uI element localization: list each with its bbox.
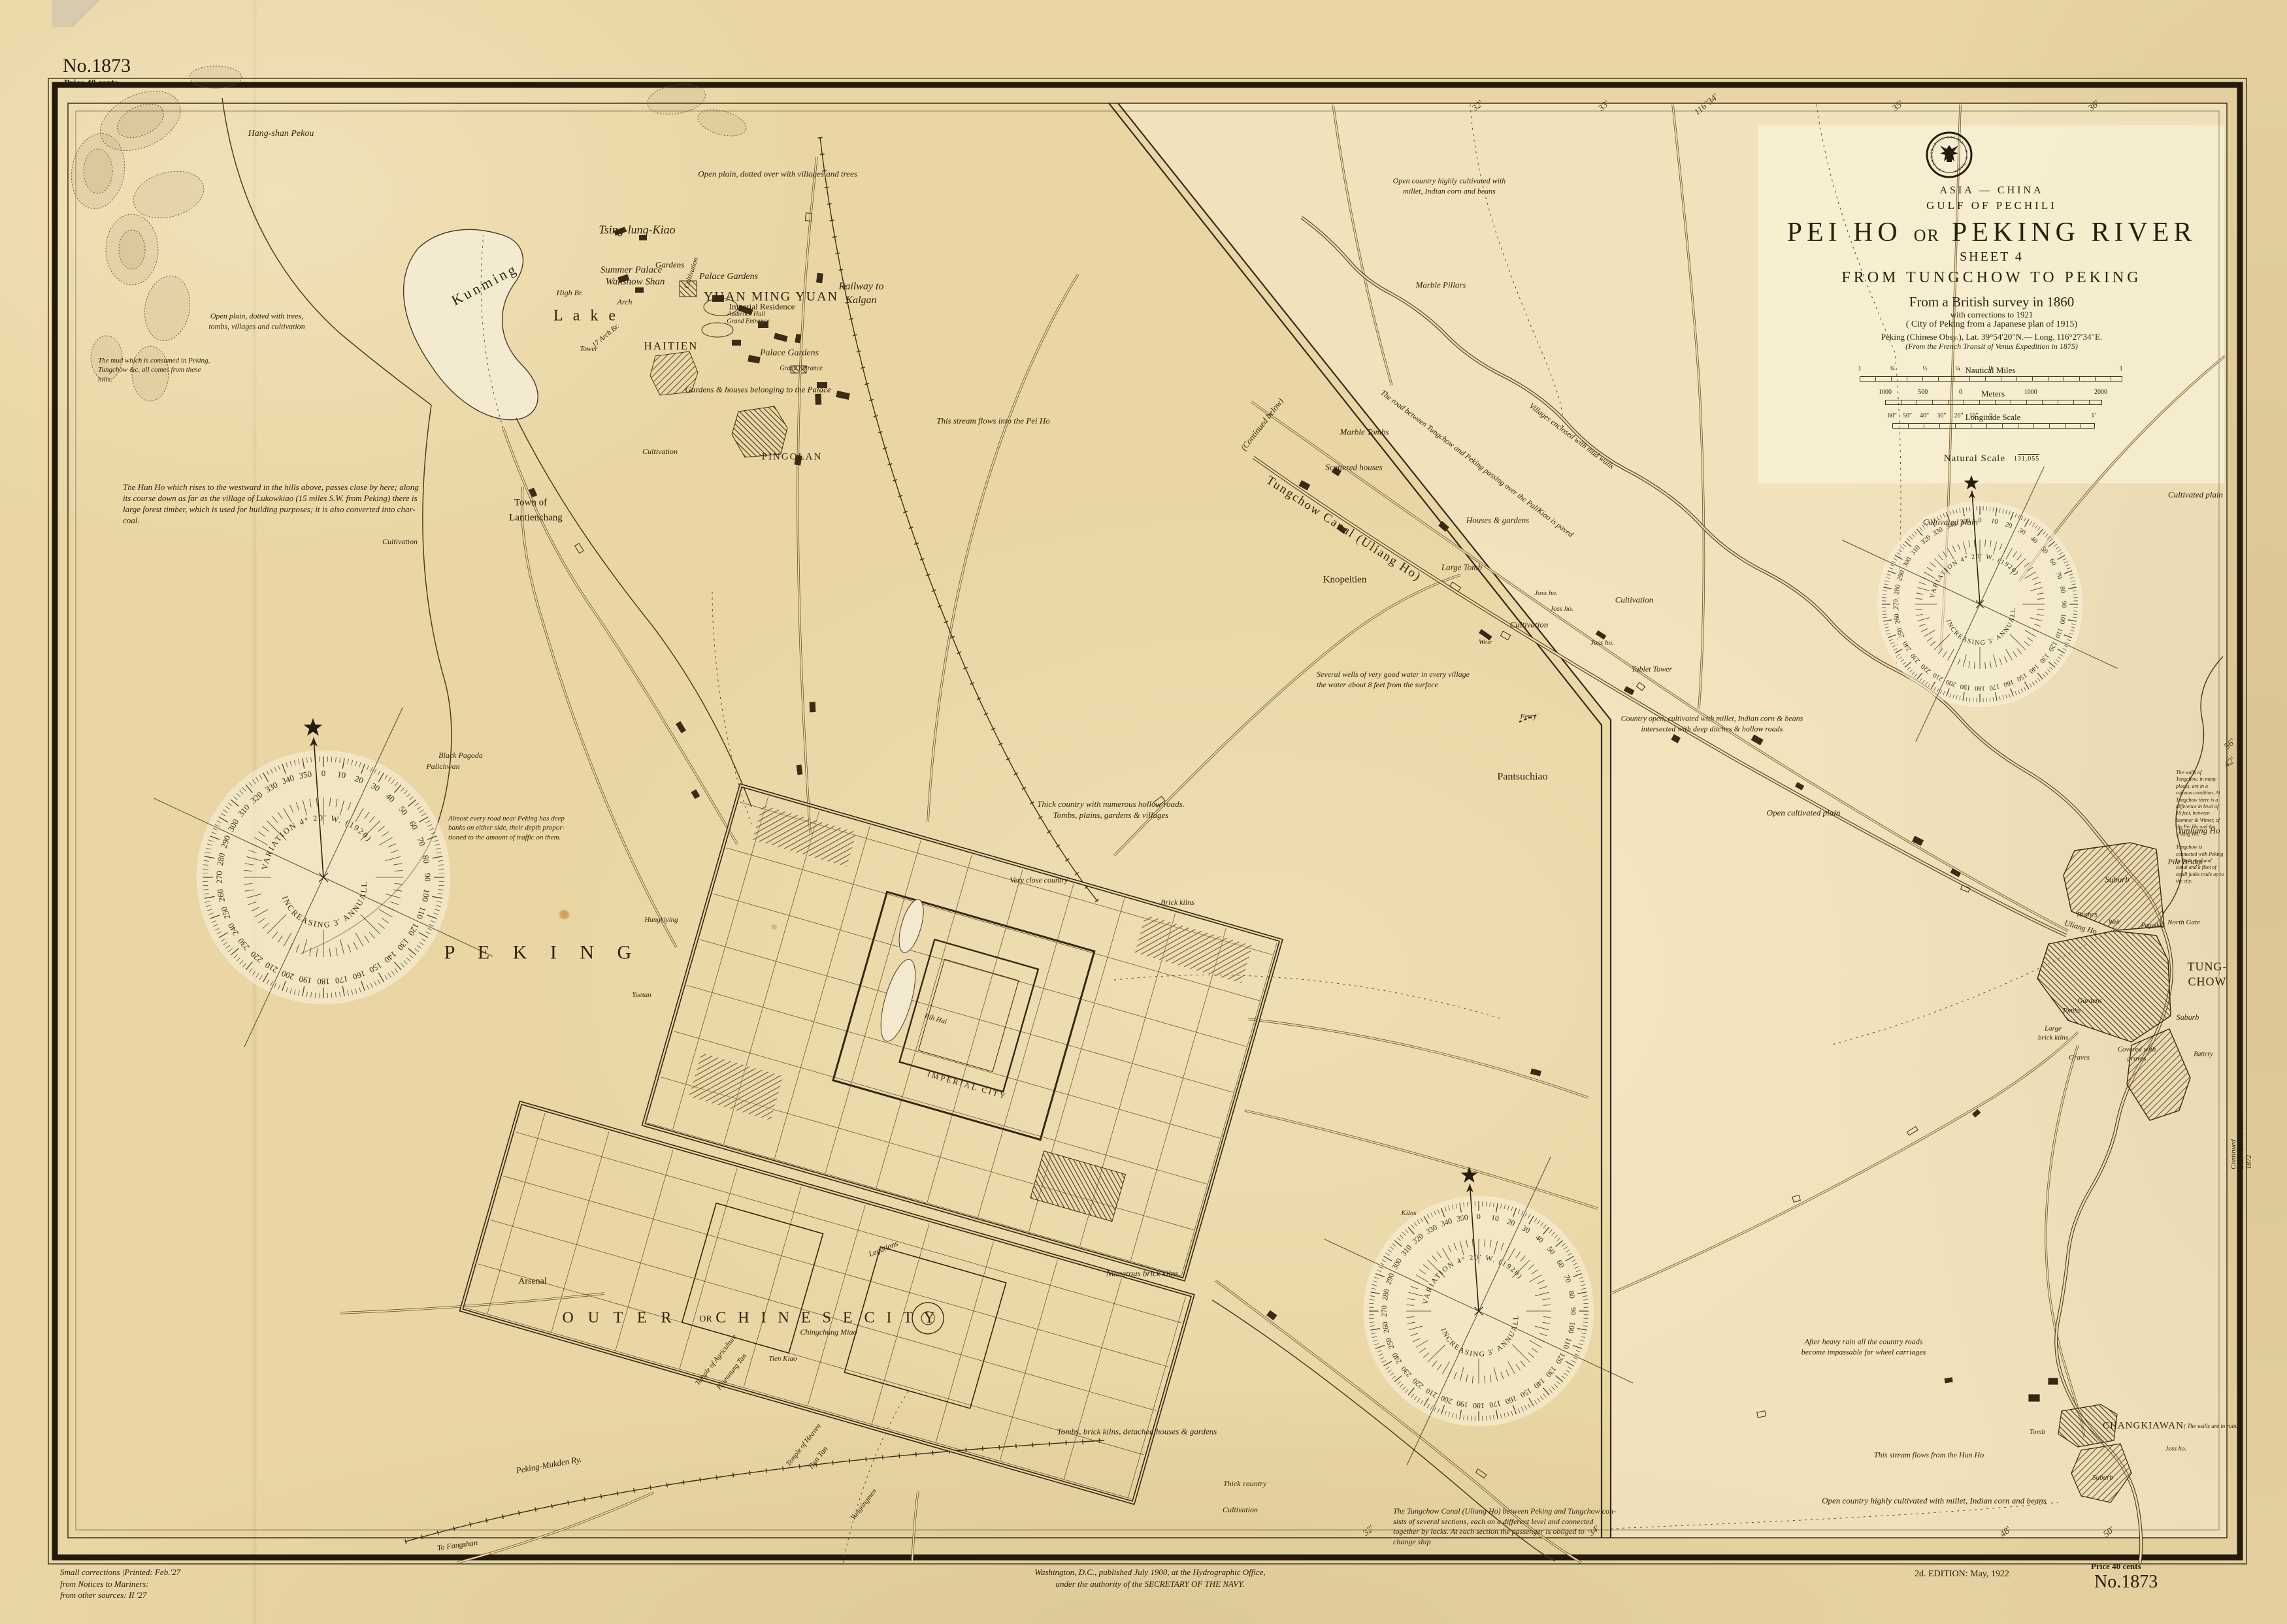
svg-text:270: 270 <box>1892 599 1900 609</box>
map-label: Weir <box>2109 918 2121 927</box>
map-label: Tower <box>580 344 597 353</box>
svg-text:0: 0 <box>1477 1212 1481 1221</box>
svg-text:90: 90 <box>1569 1307 1578 1315</box>
svg-text:10: 10 <box>1990 517 1998 526</box>
map-label: Large brick kilns <box>2038 1024 2068 1043</box>
peking-position: Peking (Chinese Obsy.), Lat. 39°54′20″N.… <box>1759 332 2224 342</box>
map-label: Tien Kiao <box>768 1354 797 1363</box>
map-label: The Tungchow Canal (Uliang Ho) between P… <box>1393 1506 1616 1547</box>
map-label: Joss ho. <box>2165 1445 2186 1453</box>
imperial-city-wall <box>833 892 1094 1139</box>
svg-text:270: 270 <box>1379 1305 1389 1317</box>
svg-text:10: 10 <box>337 769 346 780</box>
map-label: Gardens <box>2077 996 2101 1005</box>
map-label: Tombs <box>2062 1006 2081 1015</box>
map-label: Summer Palace <box>601 264 663 277</box>
map-label: P E K I N G <box>444 940 640 966</box>
paper-stain <box>559 910 569 919</box>
chart-title: PEI HOORPEKING RIVER <box>1759 217 2224 248</box>
map-label: After heavy rain all the country roads b… <box>1802 1337 1926 1357</box>
chart-subtitle: FROM TUNGCHOW TO PEKING <box>1759 269 2224 287</box>
map-label: Suburb <box>2177 1013 2199 1023</box>
nautical-chart-sheet: 0102030405060708090100110120130140150160… <box>0 0 2287 1624</box>
natural-scale: Natural Scale 131,055 <box>1759 453 2224 464</box>
map-label: Thick country <box>1223 1479 1266 1489</box>
map-label: Brick kilns <box>1160 898 1194 908</box>
price-bottom-right: Price 40 cents <box>2091 1561 2141 1572</box>
scale-bar: Meters1000500010002000 <box>1885 383 2101 405</box>
edition-note: 2d. EDITION: May, 1922 <box>1915 1569 2009 1580</box>
map-label: Rushes <box>2077 910 2097 919</box>
map-label: Tomb <box>2030 1427 2045 1437</box>
map-label: Numerous brick kilns <box>1106 1269 1179 1280</box>
map-label: Cultivation <box>382 537 418 547</box>
map-label: HAITIEN <box>644 339 699 353</box>
svg-text:180: 180 <box>1975 685 1985 692</box>
map-label: The mud which is consumed in Peking, Tun… <box>98 356 210 384</box>
map-label: Black Pagoda <box>438 751 483 761</box>
map-label: Marble Tombs <box>1340 427 1389 438</box>
map-label: This stream flows from the Hun Ho <box>1874 1450 1984 1461</box>
map-label: The walls of Tungchow, in many places, a… <box>2176 770 2224 885</box>
map-label: Open country highly cultivated with mill… <box>1393 176 1506 196</box>
map-label: O U T E R <box>562 1308 676 1328</box>
svg-text:80: 80 <box>1567 1290 1577 1299</box>
map-label: Tombs, brick kilns, detached houses & ga… <box>1057 1427 1217 1438</box>
map-label: Cultivated plain <box>1923 517 1978 528</box>
map-label: Ferry <box>1520 712 1536 721</box>
map-label: TUNG- CHOW <box>2188 960 2228 990</box>
sheet-number: SHEET 4 <box>1759 250 2224 265</box>
small-corrections-block: Small corrections |Printed: Feb.'27 from… <box>60 1567 180 1601</box>
map-label: Gardens & houses belonging to the Palace <box>685 385 831 396</box>
map-label: OR <box>699 1314 712 1325</box>
map-label: Cultivation <box>1615 595 1654 606</box>
map-label: High Br. <box>557 288 584 299</box>
paper-fold <box>52 0 111 27</box>
map-label: North Gate <box>2167 918 2200 927</box>
map-label: Tablet Tower <box>1632 664 1672 675</box>
map-label: Tsing-lung-Kiao <box>599 222 675 237</box>
map-label: Railway to Kalgan <box>839 280 884 308</box>
map-label: CHANGKIAWAN <box>2103 1420 2184 1433</box>
svg-text:90: 90 <box>423 873 433 882</box>
map-label: Joss ho. <box>1590 638 1613 647</box>
map-label: Cultivation <box>1510 620 1549 631</box>
map-label: Chingchung Miao <box>800 1327 857 1338</box>
svg-text:90: 90 <box>2060 601 2067 608</box>
position-source: (From the French Transit of Venus Expedi… <box>1759 342 2224 351</box>
svg-text:0: 0 <box>321 768 326 778</box>
map-label: Open plain, dotted over with villages an… <box>698 169 857 180</box>
svg-text:0: 0 <box>1978 517 1981 524</box>
map-label: L a k e <box>553 306 619 326</box>
map-label: Yuetan <box>632 990 651 999</box>
survey-source: From a British survey in 1860 <box>1759 294 2224 310</box>
map-label: Knopeitien <box>1323 574 1367 587</box>
scale-bar: Nautical Miles1¾½¼01 <box>1860 359 2121 382</box>
map-label: Lantienchang <box>509 512 563 525</box>
imperial-lake <box>874 956 922 1045</box>
map-label: Kilns <box>1401 1209 1416 1218</box>
svg-text:10: 10 <box>1490 1213 1500 1224</box>
kunming-lake <box>404 229 538 419</box>
chart-number-bottom: No.1873 <box>2094 1572 2158 1593</box>
map-label: Grand Entrance <box>780 365 822 373</box>
svg-text:180: 180 <box>1473 1401 1485 1410</box>
map-label: Palace Gardens <box>760 348 819 359</box>
map-label: Houses & gardens <box>1466 515 1529 527</box>
north-star-icon <box>304 718 323 736</box>
map-label: Town of <box>514 496 547 510</box>
map-label: Almost every road near Peking has deep b… <box>448 814 565 842</box>
tartar-city-wall <box>644 785 1281 1279</box>
continued-eastward-note: Continued Eastward on Chart 1872 <box>2229 1112 2253 1169</box>
map-label: This stream flows into the Pei Ho <box>936 416 1050 427</box>
map-label: Joss ho. <box>1534 589 1557 598</box>
map-label: Arsenal <box>518 1276 547 1288</box>
map-label: PINGOLAN <box>762 451 823 464</box>
map-label: Suburb <box>2105 875 2130 886</box>
city-plan-note: ( City of Peking from a Japanese plan of… <box>1759 319 2224 330</box>
map-label: Wanshow Shan <box>606 276 665 289</box>
svg-text:180: 180 <box>317 977 330 986</box>
map-label: C H I N E S E C I T Y <box>716 1308 939 1328</box>
imperial-lake-north <box>895 897 929 955</box>
map-label: Cultivation <box>642 447 678 457</box>
map-label: Cultivation <box>1223 1505 1258 1516</box>
svg-text:80: 80 <box>421 854 432 864</box>
corrections-note: with corrections to 1921 <box>1759 310 2224 320</box>
pingolan-block <box>732 406 787 457</box>
peking-city <box>461 751 1294 1502</box>
map-label: Grand Entrance <box>727 317 769 326</box>
scale-bar: Longitude Scale60″50″40″30″20″10″01′ <box>1892 406 2094 429</box>
map-label: Thick country with numerous hollow roads… <box>1037 799 1185 821</box>
map-label: ( The walls are in ruins <box>2184 1423 2239 1431</box>
north-star-icon <box>1461 1167 1478 1183</box>
publication-note: Washington, D.C., published July 1900, a… <box>934 1567 1366 1590</box>
map-label: Cultivated plain <box>2168 490 2223 501</box>
svg-text:80: 80 <box>2058 586 2067 594</box>
map-label: Pantsuchiao <box>1497 771 1547 785</box>
map-label: Suburb <box>2092 1473 2113 1482</box>
svg-text:270: 270 <box>214 871 224 884</box>
stream-lake-outlet <box>516 418 751 807</box>
map-label: The Hun Ho which rises to the westward i… <box>123 482 419 527</box>
price-top: Price 40 cents <box>64 78 118 89</box>
map-label: Weir <box>1479 638 1492 647</box>
map-label: Very close country <box>1010 875 1068 886</box>
map-label: Covered with graves <box>2118 1045 2156 1064</box>
forbidden-city-wall <box>900 939 1038 1092</box>
stream-nw <box>222 98 431 405</box>
map-label: Open country highly cultivated with mill… <box>1822 1496 2047 1507</box>
paper-stain-2 <box>771 924 777 930</box>
map-label: Scattered houses <box>1325 463 1382 474</box>
map-label: Several wells of very good water in ever… <box>1317 670 1470 690</box>
map-label: Open plain, dotted with trees, tombs, vi… <box>208 311 304 331</box>
map-label: Hang-shan Pekou <box>248 128 314 140</box>
map-label: Hungkiying <box>644 915 678 924</box>
map-label: Palace Gardens <box>699 271 758 283</box>
legation-quarter <box>1030 1151 1126 1222</box>
map-label: Gardens <box>655 260 684 271</box>
map-label: Open cultivated plain <box>1767 808 1841 819</box>
map-label: Battery <box>2194 1050 2213 1059</box>
map-label: Pagoda <box>2141 922 2161 930</box>
map-label: Palichwan <box>426 762 459 772</box>
map-label: Arch <box>617 297 633 308</box>
map-label: Graves <box>2069 1053 2090 1062</box>
chart-number-top: No.1873 <box>63 55 131 77</box>
map-label: Large Tomb <box>1441 562 1482 574</box>
map-label: Country open, cultivated with millet, In… <box>1621 713 1803 734</box>
subregion-title: GULF OF PECHILI <box>1759 199 2224 212</box>
map-label: Marble Pillars <box>1416 280 1466 291</box>
region-title: ASIA — CHINA <box>1759 185 2224 197</box>
map-label: Joss ho. <box>1550 604 1573 613</box>
